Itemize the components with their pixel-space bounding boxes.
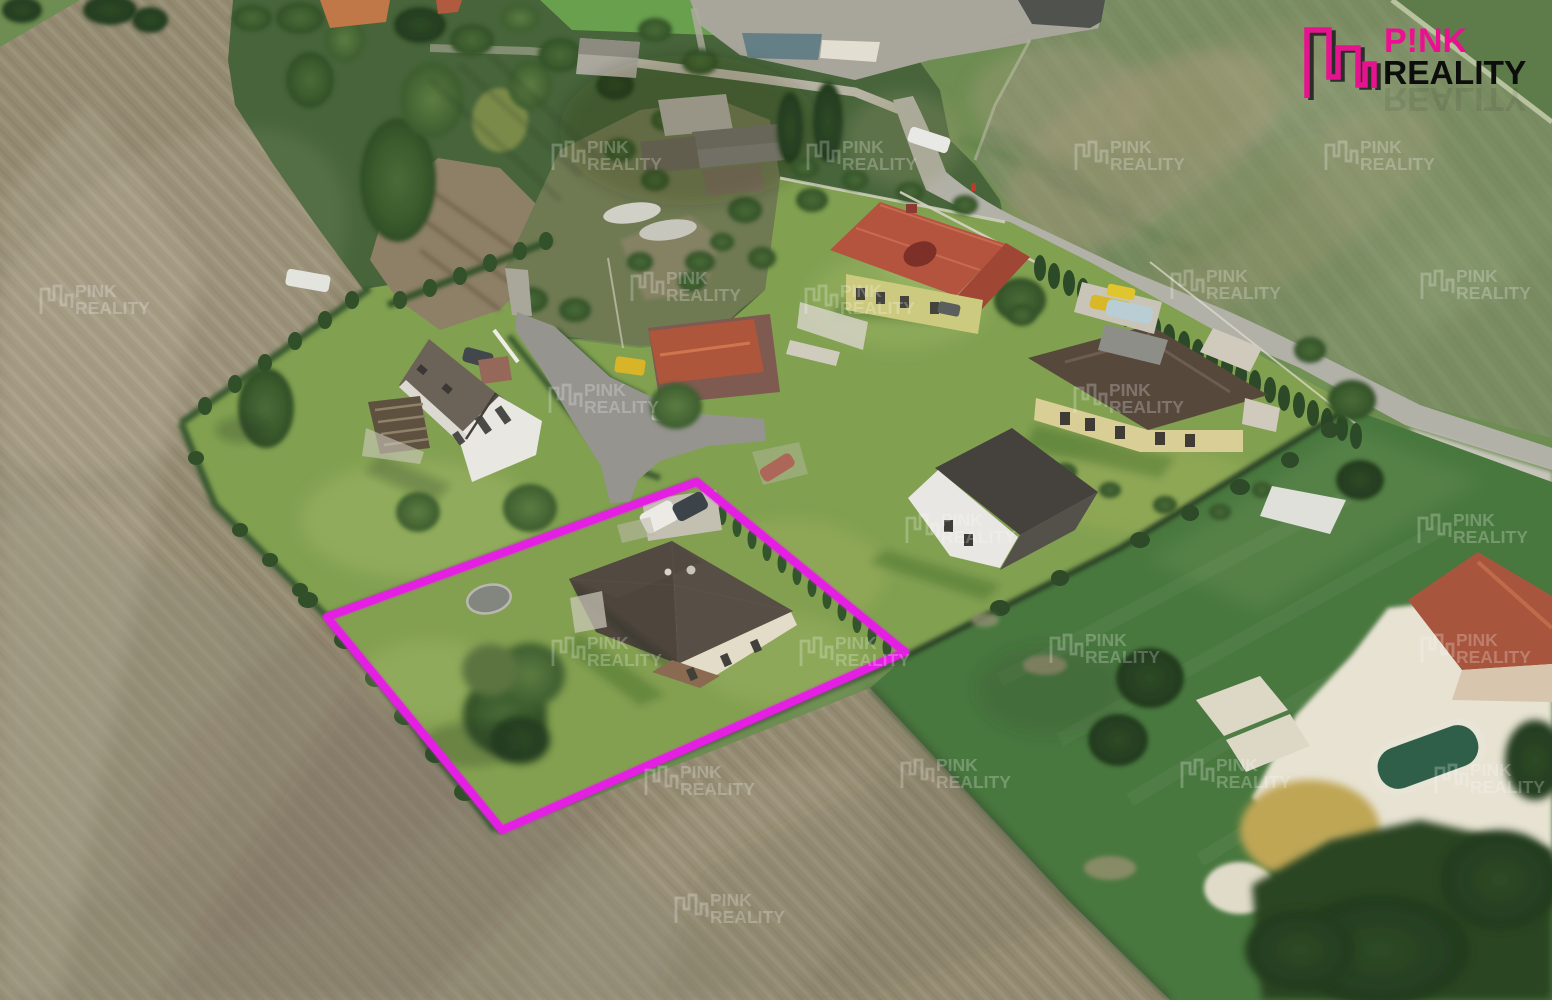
svg-text:REALITY: REALITY [1383,80,1526,117]
